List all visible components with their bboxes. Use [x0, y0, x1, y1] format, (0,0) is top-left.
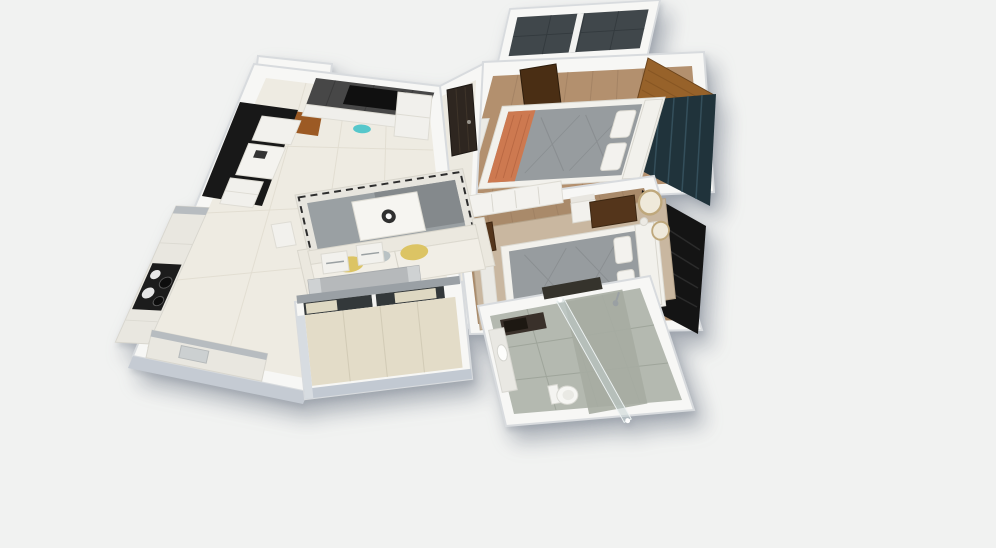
- floor-plan-canvas: [0, 0, 996, 548]
- main-entrance-door: [447, 84, 477, 156]
- floor-plan-render: [0, 0, 996, 548]
- bed-2-pillow: [613, 236, 632, 264]
- door-knob: [467, 120, 471, 124]
- living-balcony: [294, 276, 472, 399]
